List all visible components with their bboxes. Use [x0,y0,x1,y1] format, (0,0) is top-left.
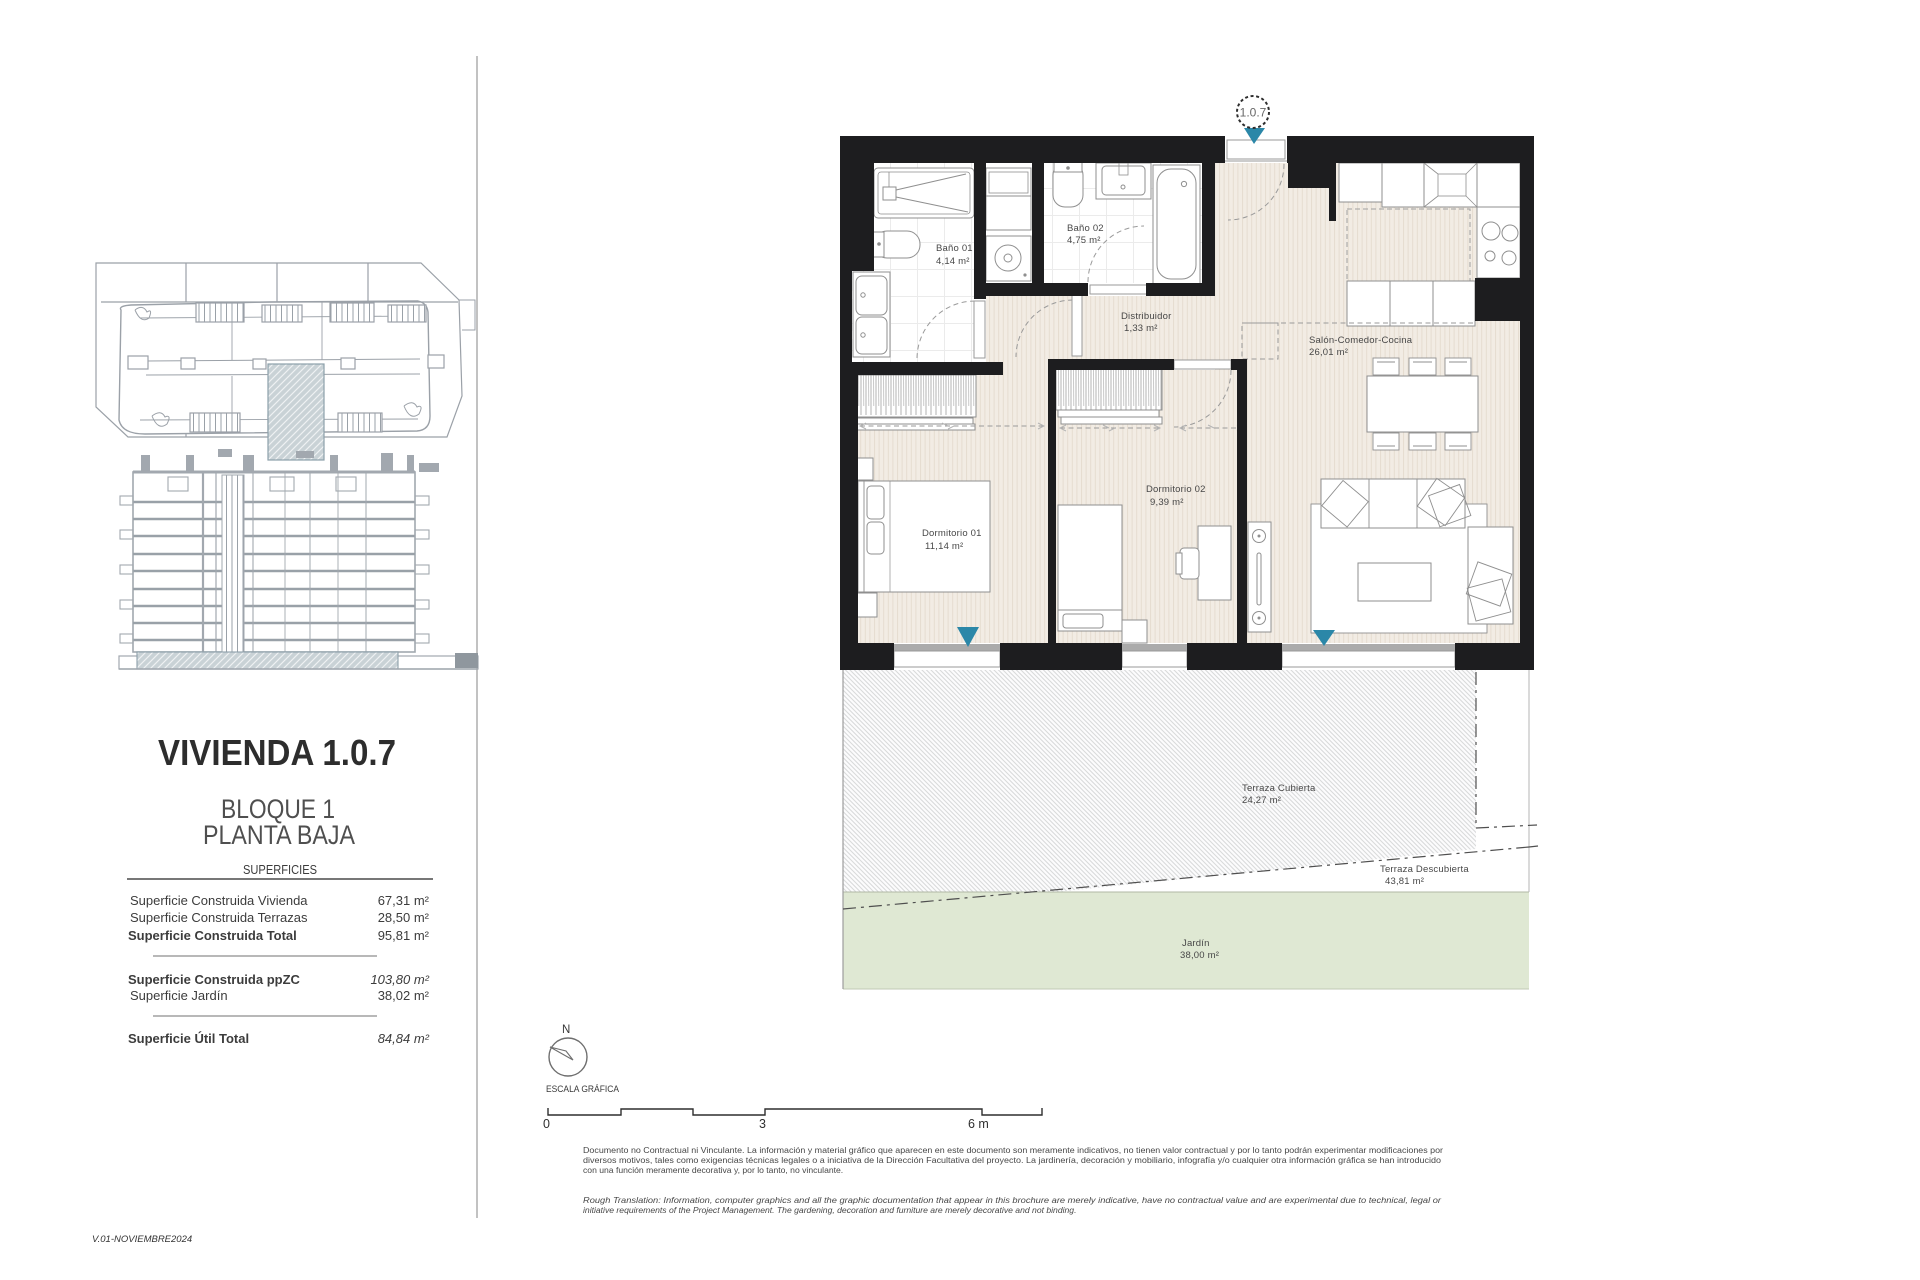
svg-text:Dormitorio 01: Dormitorio 01 [922,528,982,539]
svg-text:43,81 m²: 43,81 m² [1385,876,1424,887]
svg-text:Distribuidor: Distribuidor [1121,311,1171,322]
svg-text:ESCALA GRÁFICA: ESCALA GRÁFICA [546,1084,619,1094]
svg-text:9,39 m²: 9,39 m² [1150,497,1184,508]
svg-text:38,02 m²: 38,02 m² [378,988,430,1003]
svg-text:Salón-Comedor-Cocina: Salón-Comedor-Cocina [1309,335,1413,346]
svg-text:3: 3 [759,1117,766,1131]
svg-text:VIVIENDA 1.0.7: VIVIENDA 1.0.7 [158,732,396,773]
svg-text:1,33 m²: 1,33 m² [1124,323,1158,334]
svg-text:Dormitorio 02: Dormitorio 02 [1146,484,1206,495]
svg-text:6 m: 6 m [968,1117,989,1131]
svg-text:4,75 m²: 4,75 m² [1067,235,1101,246]
svg-text:Superficie Útil Total: Superficie Útil Total [128,1031,249,1046]
svg-text:38,00 m²: 38,00 m² [1180,950,1219,961]
svg-text:Jardín: Jardín [1182,938,1210,949]
svg-text:V.01-NOVIEMBRE2024: V.01-NOVIEMBRE2024 [92,1234,192,1245]
svg-text:Superficie Construida ppZC: Superficie Construida ppZC [128,972,301,987]
svg-text:103,80 m²: 103,80 m² [370,972,429,987]
svg-text:PLANTA BAJA: PLANTA BAJA [203,820,355,850]
svg-text:Baño 02: Baño 02 [1067,223,1104,234]
svg-text:Superficie Construida Vivienda: Superficie Construida Vivienda [130,893,308,908]
svg-text:Documento no Contractual ni Vi: Documento no Contractual ni Vinculante. … [583,1145,1443,1155]
svg-text:28,50 m²: 28,50 m² [378,910,430,925]
svg-text:Terraza Descubierta: Terraza Descubierta [1380,864,1469,875]
svg-text:1.0.7: 1.0.7 [1240,106,1267,120]
svg-text:SUPERFICIES: SUPERFICIES [243,863,317,877]
svg-text:11,14 m²: 11,14 m² [925,541,963,552]
svg-text:initiative requirements of the: initiative requirements of the Project M… [583,1205,1076,1215]
svg-text:26,01 m²: 26,01 m² [1309,347,1348,358]
svg-text:Baño 01: Baño 01 [936,243,973,254]
svg-text:4,14 m²: 4,14 m² [936,256,970,267]
svg-text:Superficie Jardín: Superficie Jardín [130,988,228,1003]
svg-text:84,84 m²: 84,84 m² [378,1031,430,1046]
svg-text:24,27 m²: 24,27 m² [1242,795,1281,806]
svg-text:con una función meramente deco: con una función meramente decorativa y, … [583,1165,843,1175]
svg-text:0: 0 [543,1117,550,1131]
svg-text:Superficie Construida Terrazas: Superficie Construida Terrazas [130,910,308,925]
svg-text:67,31 m²: 67,31 m² [378,893,430,908]
svg-text:N: N [562,1024,570,1036]
svg-text:diversos motivos, tales como e: diversos motivos, tales como exigencias … [583,1155,1441,1165]
svg-text:Terraza Cubierta: Terraza Cubierta [1242,783,1316,794]
svg-text:95,81 m²: 95,81 m² [378,928,430,943]
svg-text:Superficie Construida Total: Superficie Construida Total [128,928,297,943]
svg-text:Rough Translation: Information: Rough Translation: Information, computer… [583,1195,1442,1205]
